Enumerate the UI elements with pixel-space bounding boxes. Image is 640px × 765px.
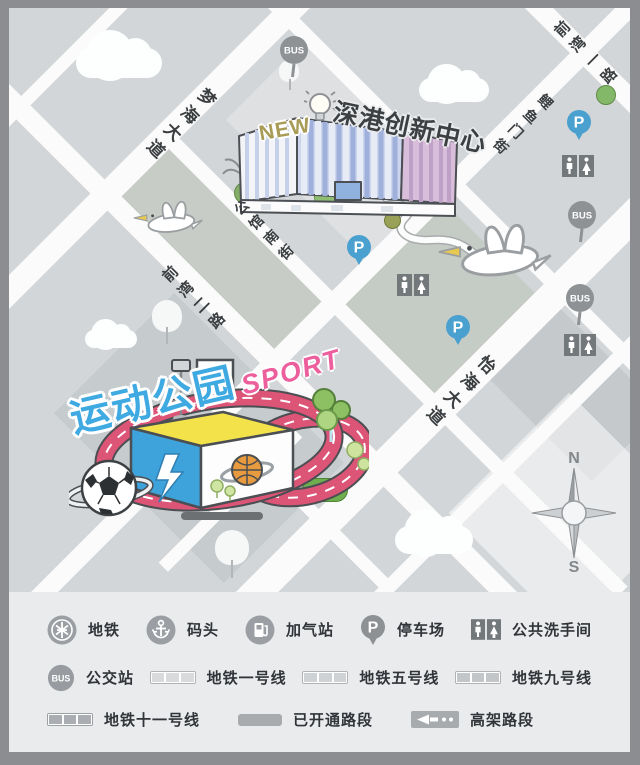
legend-row-3: 地铁十一号线 已开通路段 高架路段 [9, 709, 630, 730]
base-bar [181, 512, 263, 520]
legend-label: 加气站 [286, 619, 334, 640]
legend-item-dock: 码头 [146, 615, 219, 645]
elevated-section-swatch [411, 711, 459, 728]
restroom-marker [562, 155, 594, 177]
metro-line-9-swatch [455, 671, 501, 684]
restroom-marker [397, 274, 429, 296]
legend-label: 地铁十一号线 [104, 709, 200, 730]
legend-item-restroom: 公共洗手间 [471, 619, 592, 640]
legend-label: 停车场 [397, 619, 445, 640]
legend-row-2: 公交站 地铁一号线 地铁五号线 地铁九号线 [9, 664, 630, 692]
anchor-icon [146, 615, 176, 645]
north-label: N [568, 450, 580, 467]
parking-icon [360, 614, 386, 646]
metro-line-11-swatch [47, 713, 93, 726]
legend-item-elevated-section: 高架路段 [411, 709, 534, 730]
stadium-box [131, 412, 293, 508]
map-area: 梦海大道 前湾一路 前湾二路 公馆南街 鲤鱼门街 怡海大道 [9, 8, 630, 593]
bus-stop-marker [565, 283, 595, 327]
legend-item-opened-section: 已开通路段 [238, 709, 373, 730]
legend-label: 地铁一号线 [207, 667, 287, 688]
metro-icon [47, 615, 77, 645]
south-label: S [569, 559, 580, 574]
legend-label: 公共洗手间 [512, 619, 592, 640]
restroom-marker [564, 334, 596, 356]
gas-station-icon [245, 615, 275, 645]
legend-label: 地铁 [88, 619, 120, 640]
opened-section-swatch [238, 714, 282, 726]
legend-label: 高架路段 [470, 709, 534, 730]
bus-stop-marker [279, 35, 309, 79]
legend: 地铁 码头 加气站 停车场 公共洗手间 公交站 [9, 592, 630, 752]
legend-item-metro-line-11: 地铁十一号线 [47, 709, 200, 730]
legend-label: 地铁五号线 [359, 667, 439, 688]
legend-item-parking: 停车场 [360, 614, 445, 646]
parking-marker [445, 314, 471, 346]
compass-rose: N S [524, 446, 624, 574]
metro-line-1-swatch [150, 671, 196, 684]
bus-stop-icon [47, 664, 75, 692]
parking-marker [566, 109, 592, 141]
legend-label: 地铁九号线 [512, 667, 592, 688]
legend-label: 码头 [187, 619, 219, 640]
cloud [395, 526, 473, 554]
tree-silhouette [215, 530, 249, 578]
legend-item-metro-line-9: 地铁九号线 [455, 667, 592, 688]
legend-label: 公交站 [86, 667, 134, 688]
legend-item-bus-station: 公交站 [47, 664, 134, 692]
legend-item-metro-line-5: 地铁五号线 [302, 667, 439, 688]
metro-line-5-swatch [302, 671, 348, 684]
legend-label: 已开通路段 [293, 709, 373, 730]
bird-icon [434, 213, 552, 286]
cloud [76, 48, 162, 78]
bus-stop-marker [567, 200, 597, 244]
bird-icon [131, 194, 203, 239]
legend-item-metro-line-1: 地铁一号线 [150, 667, 287, 688]
legend-item-metro: 地铁 [47, 615, 120, 645]
legend-item-gas-station: 加气站 [245, 615, 334, 645]
legend-row-1: 地铁 码头 加气站 停车场 公共洗手间 [9, 614, 630, 646]
restroom-icon [471, 619, 501, 640]
building-base [241, 200, 455, 216]
poster-inner: 梦海大道 前湾一路 前湾二路 公馆南街 鲤鱼门街 怡海大道 [9, 8, 630, 752]
qianhai-map-poster: 梦海大道 前湾一路 前湾二路 公馆南街 鲤鱼门街 怡海大道 [0, 0, 640, 765]
parking-marker [346, 234, 372, 266]
